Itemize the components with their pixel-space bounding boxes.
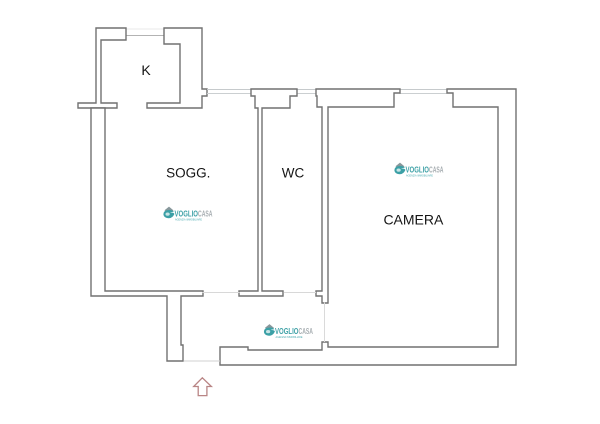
- svg-text:K: K: [141, 62, 151, 78]
- svg-text:CAMERA: CAMERA: [383, 212, 444, 228]
- svg-text:WC: WC: [282, 166, 305, 181]
- svg-text:SOGG.: SOGG.: [166, 166, 210, 181]
